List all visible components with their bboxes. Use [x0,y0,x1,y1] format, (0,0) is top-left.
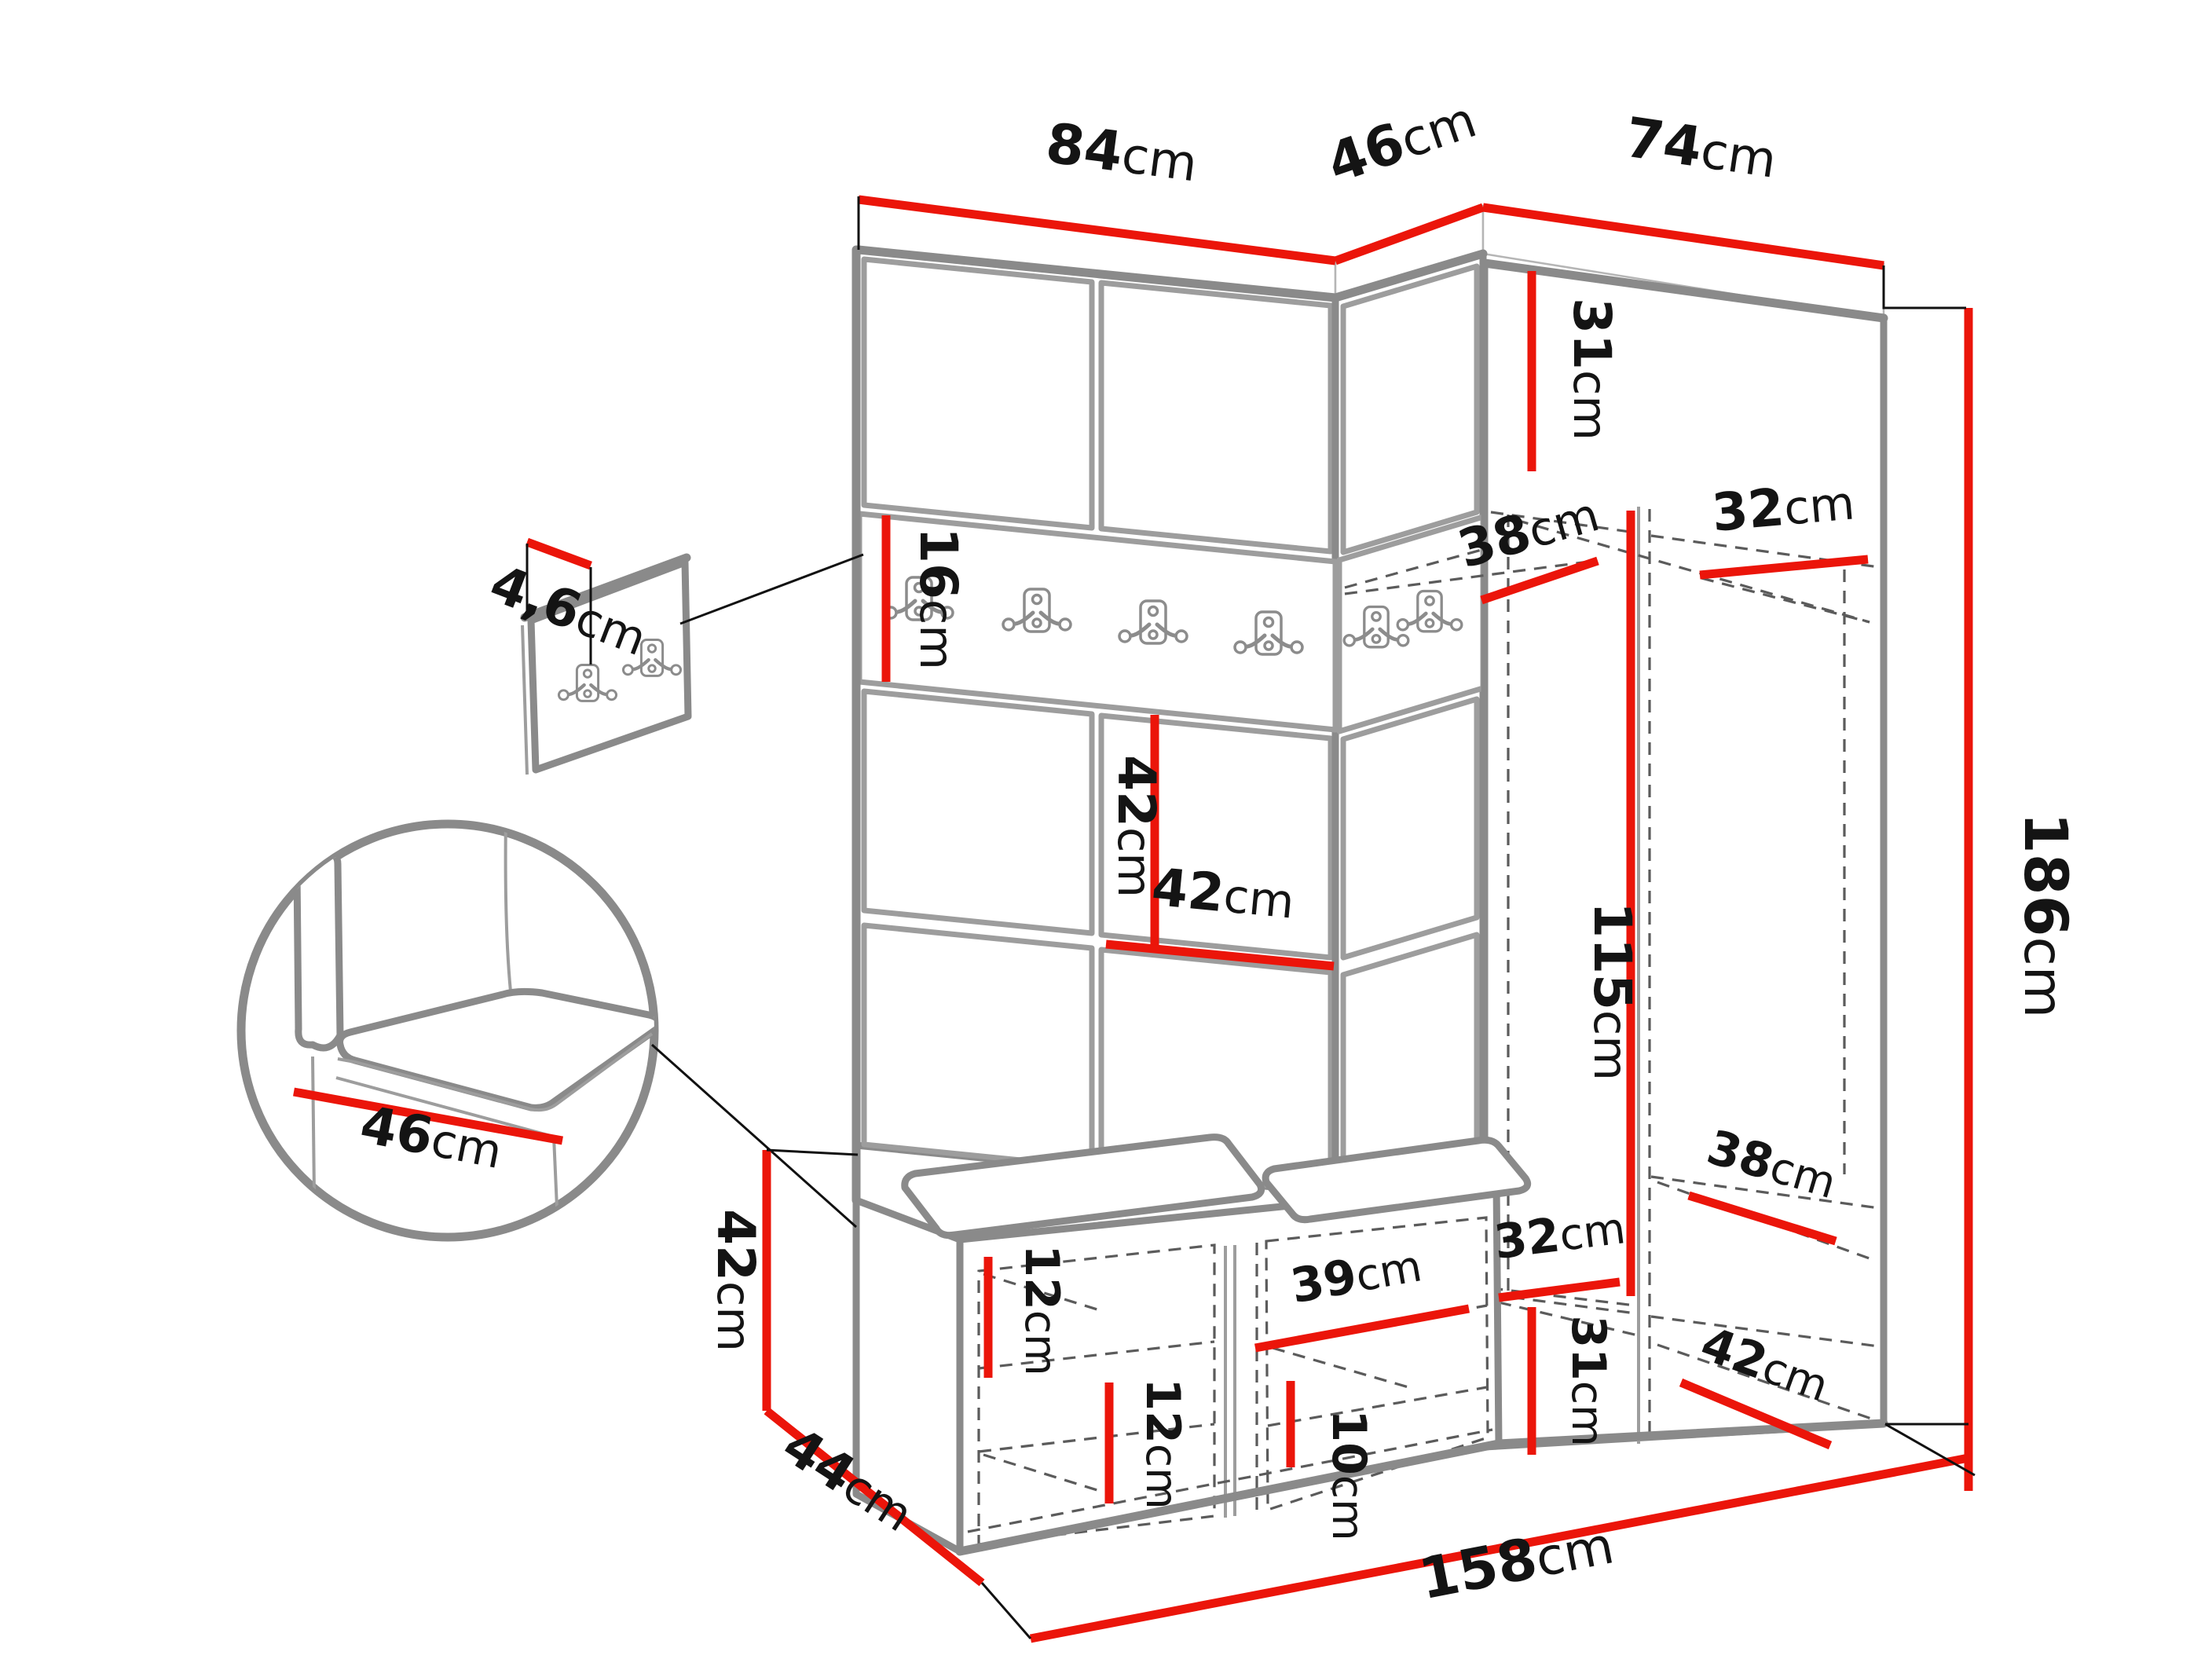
dim-label-16cm: 16cm [908,527,969,670]
hook-panel-side-edge [522,625,527,775]
dim-label-115cm: 115cm [1582,902,1643,1081]
dim-label-74cm: 74cm [1621,105,1781,191]
diagram-canvas: 84cm 46cm 74cm 186cm 4,6cm 16cm 42cm 42c… [0,0,2212,1659]
padded-panel [864,259,1092,528]
padded-panel [864,691,1092,933]
dim-label-42cm-bench: 42cm [705,1209,766,1352]
padded-panel [1343,699,1477,958]
dim-label-186cm: 186cm [2011,812,2081,1018]
padded-panel [1343,266,1477,552]
dim-label-31cm-bottom: 31cm [1561,1315,1616,1446]
padded-panel [864,925,1092,1167]
padded-panel [1101,283,1331,551]
dim-label-158cm: 158cm [1414,1510,1619,1612]
wardrobe-face [1485,263,1884,1447]
dim-label-12cm-mid: 12cm [1135,1378,1190,1509]
dim-label-12cm-left: 12cm [1014,1244,1069,1375]
dim-label-84cm: 84cm [1042,111,1201,195]
dim-label-10cm: 10cm [1321,1409,1376,1540]
dim-line-4-6cm [527,542,591,566]
furniture-dimension-diagram: 84cm 46cm 74cm 186cm 4,6cm 16cm 42cm 42c… [0,0,2212,1659]
bench [856,1137,1528,1551]
dim-label-31cm-top: 31cm [1562,298,1622,441]
dim-label-46cm: 46cm [1319,86,1484,196]
pointer-line [652,1045,856,1227]
pointer-line [680,555,863,624]
